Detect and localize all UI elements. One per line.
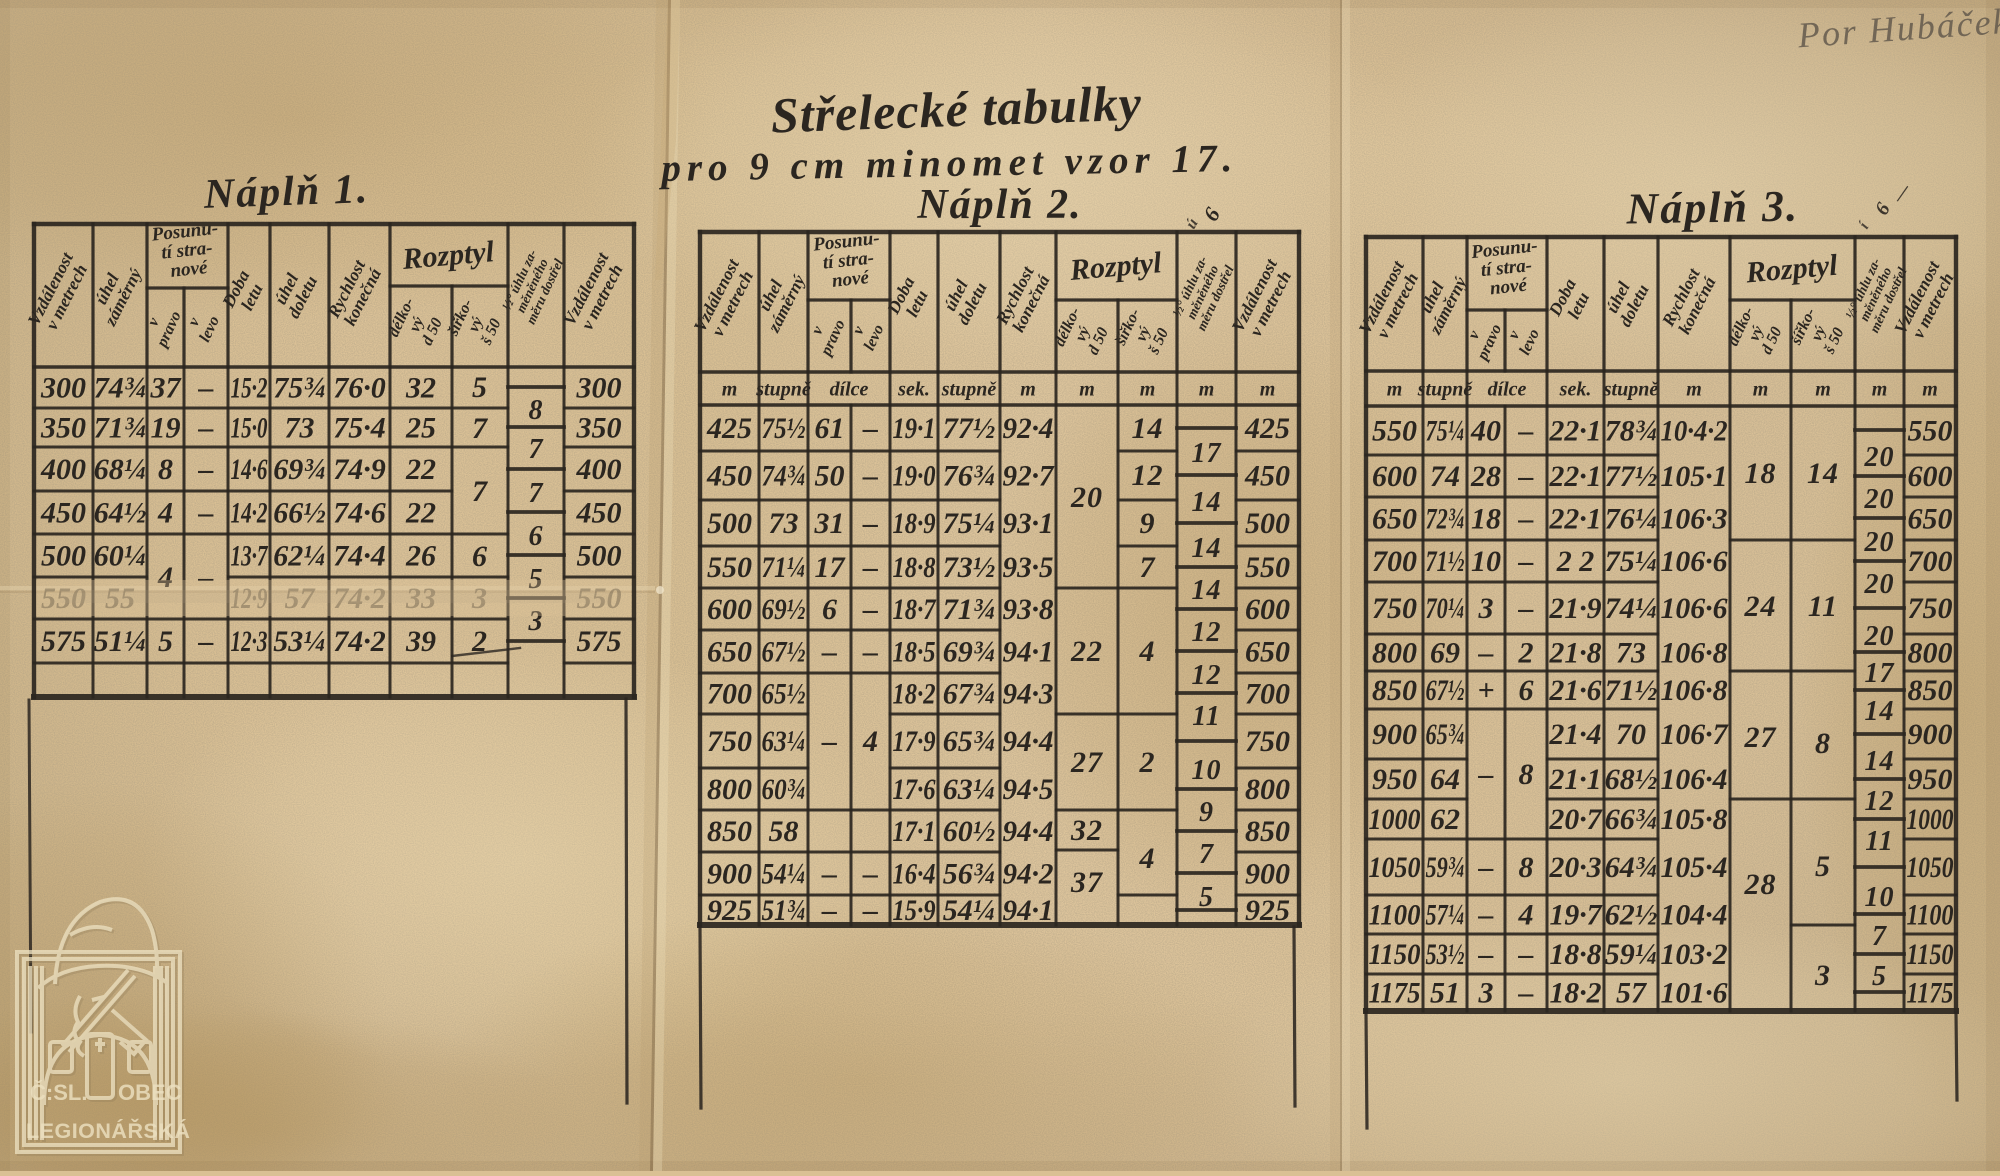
svg-text:22·1: 22·1	[1549, 415, 1602, 448]
svg-text:18·2: 18·2	[893, 678, 936, 711]
svg-text:7: 7	[472, 475, 488, 508]
svg-text:94·4: 94·4	[1003, 725, 1054, 758]
svg-text:19·7: 19·7	[1550, 899, 1603, 932]
svg-text:dílce: dílce	[830, 379, 869, 401]
svg-text:4: 4	[1139, 842, 1156, 875]
svg-text:75¼: 75¼	[1605, 545, 1658, 578]
svg-text:425: 425	[706, 412, 752, 445]
svg-text:6: 6	[472, 540, 488, 573]
svg-text:106·6: 106·6	[1661, 592, 1728, 625]
svg-text:3: 3	[1478, 977, 1494, 1010]
svg-text:17·1: 17·1	[893, 815, 936, 848]
svg-text:22: 22	[405, 497, 436, 530]
svg-text:75½: 75½	[762, 412, 806, 445]
svg-text:–: –	[1518, 592, 1534, 625]
svg-text:1150: 1150	[1907, 938, 1954, 971]
svg-text:32: 32	[1070, 814, 1103, 847]
svg-text:5: 5	[158, 625, 173, 658]
svg-text:550: 550	[707, 551, 752, 584]
svg-text:40: 40	[1470, 415, 1501, 448]
svg-text:575: 575	[41, 625, 86, 658]
svg-text:m: m	[1199, 379, 1215, 401]
svg-text:103·2: 103·2	[1661, 938, 1728, 971]
svg-text:3: 3	[1478, 592, 1494, 625]
svg-text:75¾: 75¾	[273, 372, 326, 405]
svg-text:5: 5	[1815, 850, 1831, 883]
svg-text:20: 20	[1864, 621, 1895, 652]
svg-text:stupně: stupně	[941, 379, 998, 401]
svg-text:–: –	[1518, 977, 1534, 1010]
svg-text:74¾: 74¾	[94, 372, 147, 405]
svg-text:67¾: 67¾	[943, 678, 996, 711]
svg-text:stupně: stupně	[1417, 379, 1474, 401]
svg-text:21·8: 21·8	[1549, 637, 1602, 670]
svg-text:27: 27	[1070, 746, 1103, 779]
svg-text:69½: 69½	[762, 593, 806, 626]
svg-text:700: 700	[1908, 545, 1953, 578]
svg-text:14: 14	[1865, 746, 1895, 777]
svg-text:–: –	[862, 858, 878, 891]
svg-text:65¾: 65¾	[943, 725, 996, 758]
svg-text:57¼: 57¼	[1426, 899, 1465, 932]
svg-text:10·4·2: 10·4·2	[1661, 415, 1728, 448]
svg-text:39: 39	[405, 625, 436, 658]
svg-text:70¼: 70¼	[1426, 592, 1465, 625]
svg-text:dílce: dílce	[1488, 379, 1527, 401]
svg-text:450: 450	[706, 460, 752, 493]
svg-text:69¾: 69¾	[273, 453, 326, 486]
svg-text:71½: 71½	[1426, 545, 1465, 578]
svg-text:75·4: 75·4	[333, 412, 386, 445]
svg-text:7: 7	[529, 434, 544, 465]
svg-text:–: –	[821, 894, 837, 927]
svg-text:74¾: 74¾	[762, 460, 806, 493]
svg-text:94·1: 94·1	[1003, 894, 1054, 927]
svg-text:77½: 77½	[943, 412, 996, 445]
svg-text:800: 800	[1245, 773, 1290, 806]
svg-text:73: 73	[1616, 637, 1646, 670]
svg-text:14: 14	[1865, 696, 1895, 727]
svg-text:–: –	[198, 453, 214, 486]
svg-text:74·9: 74·9	[333, 453, 386, 486]
svg-text:–: –	[821, 725, 837, 758]
svg-text:11: 11	[1192, 701, 1220, 732]
svg-text:–: –	[862, 894, 878, 927]
svg-text:13·7: 13·7	[231, 540, 269, 573]
svg-text:m: m	[1020, 379, 1036, 401]
svg-text:77½: 77½	[1605, 460, 1658, 493]
svg-text:12: 12	[1192, 617, 1222, 648]
svg-text:31: 31	[814, 507, 845, 540]
svg-text:105·4: 105·4	[1661, 851, 1728, 884]
svg-text:5: 5	[1199, 882, 1214, 913]
svg-text:Náplň 2.: Náplň 2.	[916, 182, 1082, 228]
svg-text:21·6: 21·6	[1549, 674, 1602, 707]
svg-text:62: 62	[1430, 803, 1460, 836]
svg-text:71¾: 71¾	[94, 412, 147, 445]
svg-text:800: 800	[1372, 637, 1417, 670]
svg-text:850: 850	[1245, 815, 1290, 848]
svg-text:4: 4	[1518, 899, 1534, 932]
svg-text:20: 20	[1864, 484, 1895, 515]
svg-text:66½: 66½	[273, 497, 326, 530]
svg-text:7: 7	[529, 478, 544, 509]
svg-text:69¾: 69¾	[943, 636, 996, 669]
svg-text:15·2: 15·2	[231, 372, 268, 405]
svg-text:+: +	[1477, 674, 1494, 707]
svg-text:101·6: 101·6	[1661, 977, 1728, 1010]
svg-text:17·6: 17·6	[893, 773, 936, 806]
svg-text:75¼: 75¼	[1426, 415, 1465, 448]
svg-text:450: 450	[1244, 460, 1290, 493]
svg-text:2 2: 2 2	[1556, 545, 1595, 578]
svg-text:17: 17	[1192, 438, 1222, 469]
svg-text:925: 925	[1245, 894, 1290, 927]
svg-text:m: m	[1387, 379, 1403, 401]
svg-text:14: 14	[1132, 412, 1164, 445]
svg-text:71½: 71½	[1605, 674, 1658, 707]
svg-text:62¼: 62¼	[273, 540, 326, 573]
svg-text:22·1: 22·1	[1549, 460, 1602, 493]
svg-text:Náplň 1.: Náplň 1.	[202, 166, 370, 218]
svg-text:21·4: 21·4	[1549, 718, 1602, 751]
svg-text:12: 12	[1865, 786, 1895, 817]
svg-text:73: 73	[285, 412, 315, 445]
svg-text:18·8: 18·8	[1550, 938, 1602, 971]
svg-text:–: –	[862, 551, 878, 584]
svg-text:106·8: 106·8	[1661, 674, 1728, 707]
svg-text:19·1: 19·1	[893, 412, 936, 445]
svg-text:14: 14	[1192, 487, 1222, 518]
svg-text:105·1: 105·1	[1661, 460, 1728, 493]
svg-text:350: 350	[576, 412, 622, 445]
svg-text:105·8: 105·8	[1661, 803, 1728, 836]
svg-text:6: 6	[529, 521, 544, 552]
svg-text:3: 3	[1814, 959, 1831, 992]
svg-text:750: 750	[1245, 725, 1290, 758]
svg-text:76¼: 76¼	[1605, 503, 1658, 536]
svg-text:63¼: 63¼	[943, 773, 996, 806]
svg-text:7: 7	[1140, 551, 1156, 584]
svg-text:m: m	[1686, 379, 1702, 401]
svg-text:8: 8	[1519, 851, 1534, 884]
svg-text:500: 500	[41, 540, 86, 573]
svg-text:300: 300	[576, 372, 622, 405]
svg-text:94·5: 94·5	[1003, 773, 1054, 806]
svg-text:57: 57	[1616, 977, 1647, 1010]
svg-text:12: 12	[1132, 459, 1164, 492]
svg-text:63¼: 63¼	[762, 725, 806, 758]
svg-text:650: 650	[1908, 503, 1953, 536]
svg-text:1050: 1050	[1369, 851, 1421, 884]
svg-text:106·7: 106·7	[1661, 718, 1729, 751]
svg-text:–: –	[1478, 938, 1494, 971]
svg-text:106·4: 106·4	[1661, 763, 1728, 796]
svg-text:71¾: 71¾	[943, 593, 996, 626]
svg-text:10: 10	[1865, 882, 1895, 913]
svg-text:850: 850	[1908, 674, 1953, 707]
svg-text:OBEC: OBEC	[118, 1080, 182, 1105]
svg-text:65½: 65½	[762, 678, 806, 711]
svg-text:19: 19	[151, 412, 181, 445]
svg-text:76·0: 76·0	[333, 372, 386, 405]
svg-text:sek.: sek.	[897, 379, 930, 401]
svg-text:900: 900	[707, 858, 752, 891]
svg-text:450: 450	[40, 497, 86, 530]
svg-text:4: 4	[157, 497, 173, 530]
svg-text:51¼: 51¼	[94, 625, 147, 658]
svg-text:11: 11	[1808, 590, 1838, 623]
svg-text:7: 7	[1199, 839, 1214, 870]
svg-text:28: 28	[1470, 460, 1501, 493]
svg-text:53½: 53½	[1426, 938, 1465, 971]
svg-text:550: 550	[1245, 551, 1290, 584]
svg-text:6: 6	[1519, 674, 1534, 707]
svg-text:m: m	[1922, 379, 1938, 401]
svg-text:67½: 67½	[1426, 674, 1465, 707]
svg-text:5: 5	[472, 371, 488, 404]
svg-text:10: 10	[1471, 545, 1501, 578]
svg-text:5: 5	[1872, 961, 1887, 992]
svg-text:750: 750	[1372, 592, 1417, 625]
svg-text:m: m	[1260, 379, 1276, 401]
svg-text:65¾: 65¾	[1426, 718, 1465, 751]
svg-text:74: 74	[1430, 460, 1460, 493]
svg-text:750: 750	[1908, 592, 1953, 625]
svg-text:m: m	[722, 379, 738, 401]
svg-text:15·9: 15·9	[893, 894, 936, 927]
svg-text:800: 800	[707, 773, 752, 806]
svg-text:850: 850	[707, 815, 752, 848]
svg-text:64: 64	[1430, 763, 1460, 796]
svg-text:22: 22	[1070, 635, 1103, 668]
svg-text:14: 14	[1807, 457, 1839, 490]
svg-text:–: –	[862, 460, 878, 493]
svg-text:m: m	[1079, 379, 1095, 401]
svg-text:78¾: 78¾	[1605, 415, 1658, 448]
svg-text:700: 700	[1372, 545, 1417, 578]
svg-text:16·4: 16·4	[893, 858, 936, 891]
svg-text:–: –	[1478, 758, 1494, 791]
svg-text:m: m	[1815, 379, 1831, 401]
svg-text:93·5: 93·5	[1003, 551, 1054, 584]
svg-text:28: 28	[1744, 868, 1777, 901]
svg-text:600: 600	[1372, 460, 1417, 493]
svg-text:72¾: 72¾	[1426, 503, 1465, 536]
svg-text:7: 7	[1872, 921, 1887, 952]
svg-text:94·1: 94·1	[1003, 636, 1054, 669]
svg-text:1050: 1050	[1907, 851, 1954, 884]
svg-text:94·3: 94·3	[1003, 678, 1054, 711]
svg-text:21·9: 21·9	[1549, 592, 1602, 625]
svg-text:21·1: 21·1	[1549, 763, 1602, 796]
svg-text:10: 10	[1192, 755, 1222, 786]
svg-text:24: 24	[1744, 590, 1777, 623]
svg-text:62½: 62½	[1605, 899, 1658, 932]
svg-text:92·4: 92·4	[1003, 412, 1054, 445]
svg-text:20·3: 20·3	[1549, 851, 1602, 884]
svg-text:25: 25	[405, 412, 436, 445]
svg-text:1175: 1175	[1369, 977, 1421, 1010]
svg-text:94·4: 94·4	[1003, 815, 1054, 848]
svg-text:12·3: 12·3	[231, 625, 268, 658]
svg-text:600: 600	[707, 593, 752, 626]
svg-text:–: –	[862, 593, 878, 626]
svg-text:600: 600	[1245, 593, 1290, 626]
svg-text:54¼: 54¼	[762, 858, 806, 891]
svg-text:93·8: 93·8	[1003, 593, 1054, 626]
svg-text:350: 350	[40, 412, 86, 445]
svg-text:–: –	[862, 507, 878, 540]
svg-text:700: 700	[707, 678, 752, 711]
svg-text:104·4: 104·4	[1661, 899, 1728, 932]
svg-text:60½: 60½	[943, 815, 996, 848]
svg-text:m: m	[1140, 379, 1156, 401]
svg-text:400: 400	[40, 453, 86, 486]
svg-text:18: 18	[1471, 503, 1501, 536]
svg-text:60¼: 60¼	[94, 540, 147, 573]
svg-text:14: 14	[1192, 533, 1222, 564]
svg-text:1175: 1175	[1907, 977, 1954, 1010]
svg-text:14·2: 14·2	[231, 497, 268, 530]
svg-text:51: 51	[1430, 977, 1460, 1010]
svg-text:–: –	[198, 497, 214, 530]
svg-text:950: 950	[1372, 763, 1417, 796]
svg-text:51¾: 51¾	[762, 894, 806, 927]
svg-text:68¼: 68¼	[94, 453, 147, 486]
svg-text:17: 17	[1865, 658, 1895, 689]
svg-text:550: 550	[1908, 415, 1953, 448]
svg-text:4: 4	[862, 725, 878, 758]
svg-text:–: –	[1518, 938, 1534, 971]
svg-text:8: 8	[158, 453, 173, 486]
svg-text:60¾: 60¾	[762, 773, 806, 806]
svg-text:950: 950	[1908, 763, 1953, 796]
svg-text:18·2: 18·2	[1550, 977, 1602, 1010]
svg-text:14: 14	[1192, 575, 1222, 606]
svg-text:67½: 67½	[762, 636, 806, 669]
svg-text:61: 61	[815, 412, 845, 445]
svg-text:58: 58	[769, 815, 799, 848]
svg-text:–: –	[198, 625, 214, 658]
svg-text:66¾: 66¾	[1605, 803, 1658, 836]
svg-text:–: –	[1518, 503, 1534, 536]
svg-text:Č:SL.: Č:SL.	[30, 1080, 87, 1105]
svg-text:106·8: 106·8	[1661, 637, 1728, 670]
svg-text:14·6: 14·6	[231, 453, 268, 486]
svg-text:500: 500	[707, 507, 752, 540]
svg-text:76¾: 76¾	[943, 460, 996, 493]
svg-text:19·0: 19·0	[893, 460, 936, 493]
svg-text:27: 27	[1744, 721, 1777, 754]
svg-text:–: –	[1478, 637, 1494, 670]
svg-text:m: m	[1872, 379, 1888, 401]
svg-text:8: 8	[1519, 758, 1534, 791]
svg-text:53¼: 53¼	[273, 625, 326, 658]
svg-text:1150: 1150	[1369, 938, 1421, 971]
svg-text:–: –	[1478, 851, 1494, 884]
svg-text:750: 750	[707, 725, 752, 758]
svg-text:–: –	[821, 636, 837, 669]
svg-text:32: 32	[405, 372, 436, 405]
svg-text:69: 69	[1430, 637, 1460, 670]
svg-text:900: 900	[1245, 858, 1290, 891]
svg-text:20: 20	[1864, 442, 1895, 473]
svg-text:37: 37	[150, 372, 182, 405]
svg-text:9: 9	[1199, 797, 1214, 828]
svg-text:18·8: 18·8	[893, 551, 936, 584]
svg-text:Náplň 3.: Náplň 3.	[1625, 182, 1799, 234]
svg-text:8: 8	[529, 395, 544, 426]
svg-text:925: 925	[707, 894, 752, 927]
svg-text:425: 425	[1244, 412, 1290, 445]
svg-text:sek.: sek.	[1559, 379, 1592, 401]
svg-text:–: –	[1518, 545, 1534, 578]
svg-text:74·6: 74·6	[333, 497, 386, 530]
svg-text:–: –	[198, 372, 214, 405]
svg-text:2: 2	[1518, 637, 1534, 670]
svg-text:6: 6	[822, 593, 837, 626]
svg-text:800: 800	[1908, 637, 1953, 670]
svg-text:4: 4	[1139, 635, 1156, 668]
svg-text:18·7: 18·7	[893, 593, 937, 626]
svg-text:650: 650	[1372, 503, 1417, 536]
svg-text:64¾: 64¾	[1605, 851, 1658, 884]
svg-text:18·5: 18·5	[893, 636, 936, 669]
svg-text:LEGIONÁŘSKÁ: LEGIONÁŘSKÁ	[26, 1118, 190, 1143]
svg-text:–: –	[198, 412, 214, 445]
svg-text:900: 900	[1372, 718, 1417, 751]
svg-text:37: 37	[1070, 866, 1103, 899]
svg-text:74·4: 74·4	[333, 540, 386, 573]
svg-text:68½: 68½	[1605, 763, 1658, 796]
svg-text:700: 700	[1245, 678, 1290, 711]
svg-text:20·7: 20·7	[1549, 803, 1603, 836]
svg-text:1100: 1100	[1369, 899, 1421, 932]
svg-text:600: 600	[1908, 460, 1953, 493]
svg-text:11: 11	[1865, 826, 1893, 857]
svg-text:94·2: 94·2	[1003, 858, 1054, 891]
svg-text:stupně: stupně	[755, 379, 812, 401]
svg-text:–: –	[862, 412, 878, 445]
svg-text:59¼: 59¼	[1605, 938, 1658, 971]
svg-text:450: 450	[576, 497, 622, 530]
svg-text:–: –	[1518, 460, 1534, 493]
svg-text:20: 20	[1864, 569, 1895, 600]
svg-text:22: 22	[405, 453, 436, 486]
svg-text:650: 650	[707, 636, 752, 669]
svg-text:1000: 1000	[1369, 803, 1421, 836]
svg-text:106·3: 106·3	[1661, 503, 1728, 536]
svg-text:400: 400	[576, 453, 622, 486]
svg-text:650: 650	[1245, 636, 1290, 669]
svg-text:8: 8	[1815, 727, 1831, 760]
svg-text:1100: 1100	[1907, 899, 1954, 932]
svg-text:54¼: 54¼	[943, 894, 996, 927]
svg-text:550: 550	[1372, 415, 1417, 448]
svg-text:500: 500	[1245, 507, 1290, 540]
svg-text:7: 7	[472, 412, 488, 445]
svg-text:59¾: 59¾	[1426, 851, 1465, 884]
svg-text:64½: 64½	[94, 497, 147, 530]
svg-text:18·9: 18·9	[893, 507, 936, 540]
svg-text:17: 17	[815, 551, 846, 584]
svg-text:74¼: 74¼	[1605, 592, 1658, 625]
svg-text:12: 12	[1192, 660, 1222, 691]
svg-text:20: 20	[1864, 527, 1895, 558]
svg-text:74·2: 74·2	[333, 625, 386, 658]
svg-text:22·1: 22·1	[1549, 503, 1602, 536]
